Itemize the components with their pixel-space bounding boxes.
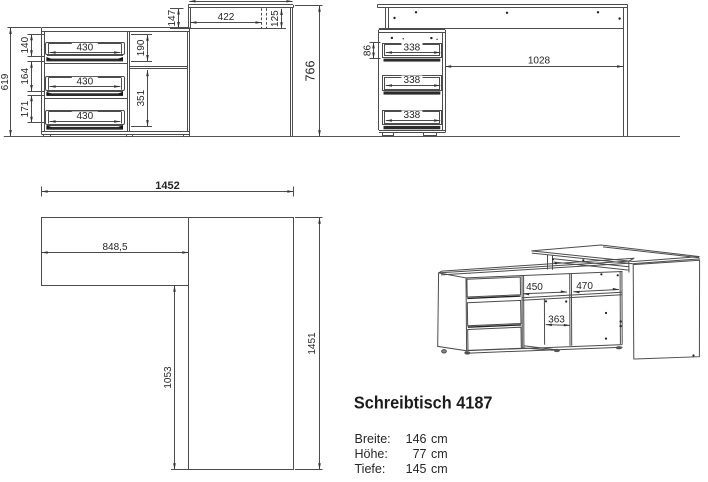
- svg-text:171: 171: [20, 100, 31, 117]
- svg-text:Tiefe:: Tiefe:: [355, 462, 386, 476]
- svg-text:cm: cm: [431, 462, 448, 476]
- svg-text:430: 430: [76, 77, 93, 88]
- svg-text:1028: 1028: [528, 56, 551, 67]
- svg-text:430: 430: [76, 43, 93, 54]
- svg-text:86: 86: [362, 45, 373, 57]
- svg-text:Breite:: Breite:: [355, 432, 391, 446]
- svg-text:848,5: 848,5: [102, 242, 127, 253]
- svg-text:470: 470: [576, 281, 593, 292]
- svg-text:338: 338: [404, 110, 421, 121]
- svg-text:338: 338: [404, 75, 421, 86]
- svg-text:77: 77: [413, 447, 427, 461]
- svg-text:422: 422: [218, 12, 235, 23]
- svg-text:145: 145: [406, 462, 427, 476]
- svg-text:1452: 1452: [155, 180, 179, 192]
- svg-text:125: 125: [270, 10, 281, 27]
- svg-text:338: 338: [404, 42, 421, 53]
- svg-text:164: 164: [20, 68, 31, 85]
- svg-text:Schreibtisch 4187: Schreibtisch 4187: [354, 392, 493, 412]
- svg-text:619: 619: [0, 73, 11, 90]
- svg-text:140: 140: [20, 36, 31, 53]
- svg-text:1053: 1053: [163, 366, 174, 389]
- svg-text:450: 450: [526, 282, 543, 293]
- svg-text:190: 190: [136, 39, 147, 56]
- svg-text:766: 766: [304, 61, 318, 82]
- svg-text:351: 351: [136, 89, 147, 106]
- svg-text:1451: 1451: [307, 332, 318, 355]
- svg-text:cm: cm: [431, 447, 448, 461]
- svg-text:147: 147: [167, 9, 178, 26]
- svg-text:cm: cm: [431, 432, 448, 446]
- svg-text:430: 430: [76, 111, 93, 122]
- svg-text:146: 146: [406, 432, 427, 446]
- svg-text:Höhe:: Höhe:: [355, 447, 388, 461]
